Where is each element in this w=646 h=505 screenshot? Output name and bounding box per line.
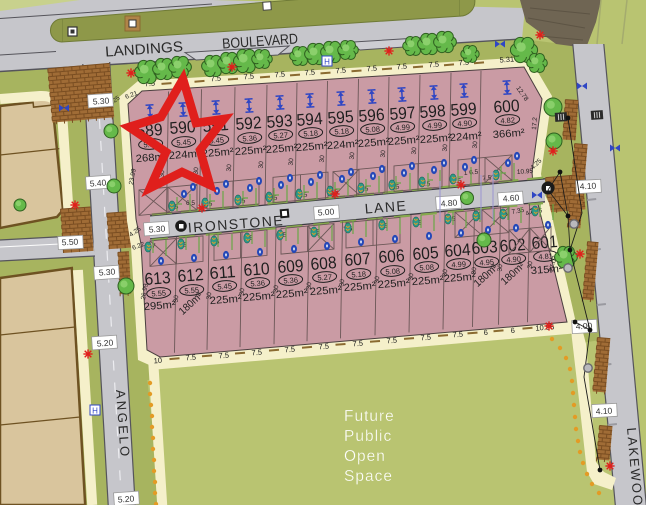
svg-text:225m²: 225m² bbox=[419, 132, 452, 147]
svg-text:30: 30 bbox=[471, 267, 479, 275]
svg-text:225m²: 225m² bbox=[411, 274, 444, 289]
svg-text:598: 598 bbox=[419, 101, 446, 122]
svg-text:7.5: 7.5 bbox=[218, 351, 229, 361]
svg-text:30: 30 bbox=[442, 269, 450, 277]
svg-text:4.99: 4.99 bbox=[427, 120, 442, 130]
svg-text:596: 596 bbox=[358, 105, 385, 126]
svg-text:30: 30 bbox=[306, 282, 314, 290]
svg-text:601: 601 bbox=[531, 232, 558, 253]
svg-text:Future: Future bbox=[344, 408, 395, 425]
svg-text:30: 30 bbox=[497, 264, 505, 272]
svg-text:30: 30 bbox=[408, 273, 416, 281]
svg-text:30: 30 bbox=[173, 295, 181, 303]
svg-text:612: 612 bbox=[177, 265, 204, 286]
svg-text:7.5: 7.5 bbox=[274, 70, 285, 80]
svg-text:5.18: 5.18 bbox=[303, 128, 318, 138]
svg-text:4.80: 4.80 bbox=[440, 197, 457, 208]
svg-text:366m²: 366m² bbox=[492, 127, 525, 142]
svg-text:605: 605 bbox=[412, 243, 439, 264]
svg-text:Open: Open bbox=[344, 448, 386, 465]
svg-text:Public: Public bbox=[344, 428, 392, 445]
svg-text:5.00: 5.00 bbox=[317, 206, 334, 217]
svg-text:225m²: 225m² bbox=[343, 280, 376, 295]
svg-text:594: 594 bbox=[296, 109, 323, 130]
svg-text:7.5: 7.5 bbox=[304, 68, 315, 78]
svg-text:225m²: 225m² bbox=[209, 293, 242, 308]
svg-text:4.10: 4.10 bbox=[579, 181, 596, 192]
svg-text:7.5: 7.5 bbox=[352, 339, 363, 349]
svg-text:5.36: 5.36 bbox=[250, 278, 265, 288]
svg-text:30: 30 bbox=[319, 155, 327, 163]
svg-text:5.20: 5.20 bbox=[96, 337, 113, 348]
svg-text:7.5: 7.5 bbox=[284, 345, 295, 355]
svg-text:225m²: 225m² bbox=[234, 144, 267, 159]
svg-text:225m²: 225m² bbox=[309, 284, 342, 299]
svg-text:17.2: 17.2 bbox=[531, 117, 539, 131]
svg-text:592: 592 bbox=[235, 113, 262, 134]
svg-text:5.30: 5.30 bbox=[148, 223, 165, 234]
svg-text:5.40: 5.40 bbox=[89, 177, 106, 188]
svg-text:30: 30 bbox=[374, 276, 382, 284]
svg-text:30: 30 bbox=[258, 161, 266, 169]
svg-text:5.45: 5.45 bbox=[176, 137, 191, 147]
svg-text:5.08: 5.08 bbox=[385, 266, 400, 276]
svg-text:30: 30 bbox=[442, 144, 450, 152]
svg-text:225m²: 225m² bbox=[357, 136, 390, 151]
svg-text:225m²: 225m² bbox=[387, 134, 420, 149]
svg-text:600: 600 bbox=[493, 96, 520, 117]
svg-text:7.5: 7.5 bbox=[335, 66, 346, 76]
svg-text:595: 595 bbox=[327, 107, 354, 128]
svg-text:4.10: 4.10 bbox=[595, 406, 612, 417]
svg-text:5.50: 5.50 bbox=[61, 237, 78, 248]
svg-text:30: 30 bbox=[288, 158, 296, 166]
svg-text:LANE: LANE bbox=[364, 197, 408, 216]
svg-text:7.5: 7.5 bbox=[243, 72, 254, 82]
svg-text:4.99: 4.99 bbox=[451, 259, 466, 269]
svg-text:295m²: 295m² bbox=[143, 299, 176, 314]
svg-text:7.5: 7.5 bbox=[386, 336, 397, 346]
svg-text:611: 611 bbox=[209, 262, 236, 283]
svg-text:30: 30 bbox=[380, 150, 388, 158]
svg-text:5.08: 5.08 bbox=[365, 124, 380, 134]
svg-text:225m²: 225m² bbox=[265, 142, 298, 157]
svg-text:593: 593 bbox=[266, 111, 293, 132]
svg-text:607: 607 bbox=[344, 249, 371, 270]
svg-text:30: 30 bbox=[349, 152, 357, 160]
svg-text:225m²: 225m² bbox=[295, 140, 328, 155]
svg-text:5.27: 5.27 bbox=[273, 130, 288, 140]
svg-text:5.55: 5.55 bbox=[151, 288, 166, 298]
svg-text:7.5: 7.5 bbox=[185, 353, 196, 363]
svg-text:5.36: 5.36 bbox=[242, 133, 257, 143]
svg-text:4.60: 4.60 bbox=[502, 192, 519, 203]
svg-text:30: 30 bbox=[273, 285, 281, 293]
svg-text:5.36: 5.36 bbox=[283, 275, 298, 285]
svg-text:30: 30 bbox=[239, 288, 247, 296]
svg-text:5.30: 5.30 bbox=[98, 266, 115, 277]
svg-text:225m²: 225m² bbox=[275, 287, 308, 302]
svg-text:4.82: 4.82 bbox=[500, 115, 515, 125]
svg-text:10: 10 bbox=[153, 356, 162, 366]
svg-text:7.5: 7.5 bbox=[366, 64, 377, 74]
svg-text:6.5: 6.5 bbox=[186, 200, 195, 207]
svg-text:597: 597 bbox=[389, 103, 416, 124]
svg-text:609: 609 bbox=[277, 256, 304, 277]
svg-text:7.5: 7.5 bbox=[420, 333, 431, 343]
svg-text:30: 30 bbox=[527, 261, 535, 269]
svg-text:30: 30 bbox=[206, 292, 214, 300]
svg-text:30: 30 bbox=[411, 147, 419, 155]
svg-text:4.99: 4.99 bbox=[395, 122, 410, 132]
svg-text:7.5: 7.5 bbox=[452, 330, 463, 340]
svg-text:7.5: 7.5 bbox=[396, 62, 407, 72]
svg-text:H: H bbox=[92, 407, 98, 416]
svg-text:6: 6 bbox=[483, 328, 488, 337]
svg-text:5.18: 5.18 bbox=[334, 126, 349, 136]
svg-text:225m²: 225m² bbox=[242, 290, 275, 305]
svg-text:5.20: 5.20 bbox=[117, 493, 134, 504]
svg-text:30: 30 bbox=[339, 279, 347, 287]
svg-text:5.31: 5.31 bbox=[499, 54, 514, 64]
svg-text:Space: Space bbox=[344, 468, 393, 485]
svg-text:5.45: 5.45 bbox=[217, 281, 232, 291]
svg-text:H: H bbox=[324, 58, 330, 67]
svg-text:225m²: 225m² bbox=[377, 277, 410, 292]
svg-text:5.08: 5.08 bbox=[419, 262, 434, 272]
svg-text:608: 608 bbox=[310, 253, 337, 274]
svg-text:30: 30 bbox=[472, 141, 480, 149]
svg-text:5.30: 5.30 bbox=[92, 95, 109, 106]
svg-text:599: 599 bbox=[450, 99, 477, 120]
svg-text:7.5: 7.5 bbox=[251, 348, 262, 358]
svg-text:604: 604 bbox=[444, 240, 471, 261]
svg-text:7.5: 7.5 bbox=[318, 342, 329, 352]
svg-text:5.18: 5.18 bbox=[351, 269, 366, 279]
svg-text:610: 610 bbox=[243, 259, 270, 280]
svg-text:4.90: 4.90 bbox=[457, 118, 472, 128]
svg-text:5.27: 5.27 bbox=[317, 272, 332, 282]
svg-text:6: 6 bbox=[510, 326, 515, 335]
svg-text:30: 30 bbox=[226, 164, 234, 172]
svg-text:7.5: 7.5 bbox=[428, 60, 439, 70]
svg-text:606: 606 bbox=[378, 246, 405, 267]
svg-text:224m²: 224m² bbox=[326, 138, 359, 153]
